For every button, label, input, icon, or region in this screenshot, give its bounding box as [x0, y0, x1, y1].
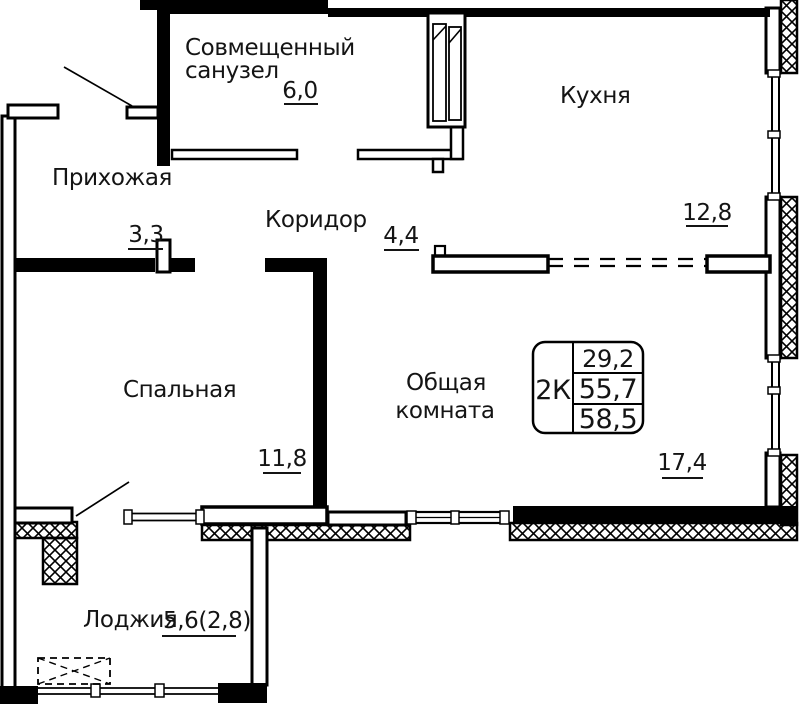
floor-plan-page: 2К 29,2 55,7 58,5 Совмещенный санузел 6,…	[0, 0, 800, 708]
kitchen-area: 12,8	[682, 200, 732, 226]
area-total-value: 58,5	[579, 404, 638, 435]
apartment-type-label: 2К	[535, 375, 571, 406]
kitchen-label: Кухня	[560, 83, 630, 109]
corridor-area: 4,4	[383, 223, 418, 249]
ventilation-shaft	[428, 13, 465, 127]
living-room-label-line2: комната	[395, 398, 494, 424]
plan-background	[0, 0, 800, 708]
bedroom-area: 11,8	[257, 446, 307, 472]
area-living-value: 29,2	[582, 345, 634, 373]
info-table: 2К 29,2 55,7 58,5	[533, 342, 643, 435]
hallway-area: 3,3	[128, 222, 163, 248]
living-room-label-line1: Общая	[406, 370, 486, 396]
bedroom-label: Спальная	[123, 377, 236, 403]
bathroom-label-line2: санузел	[185, 58, 279, 84]
bathroom-area: 6,0	[282, 78, 317, 104]
living-room-area: 17,4	[657, 450, 707, 476]
area-apartment-value: 55,7	[579, 374, 638, 405]
loggia-area: 5,6(2,8)	[163, 608, 251, 634]
hallway-label: Прихожая	[52, 165, 172, 191]
floor-plan-svg: 2К 29,2 55,7 58,5 Совмещенный санузел 6,…	[0, 0, 800, 708]
corridor-label: Коридор	[265, 207, 367, 233]
